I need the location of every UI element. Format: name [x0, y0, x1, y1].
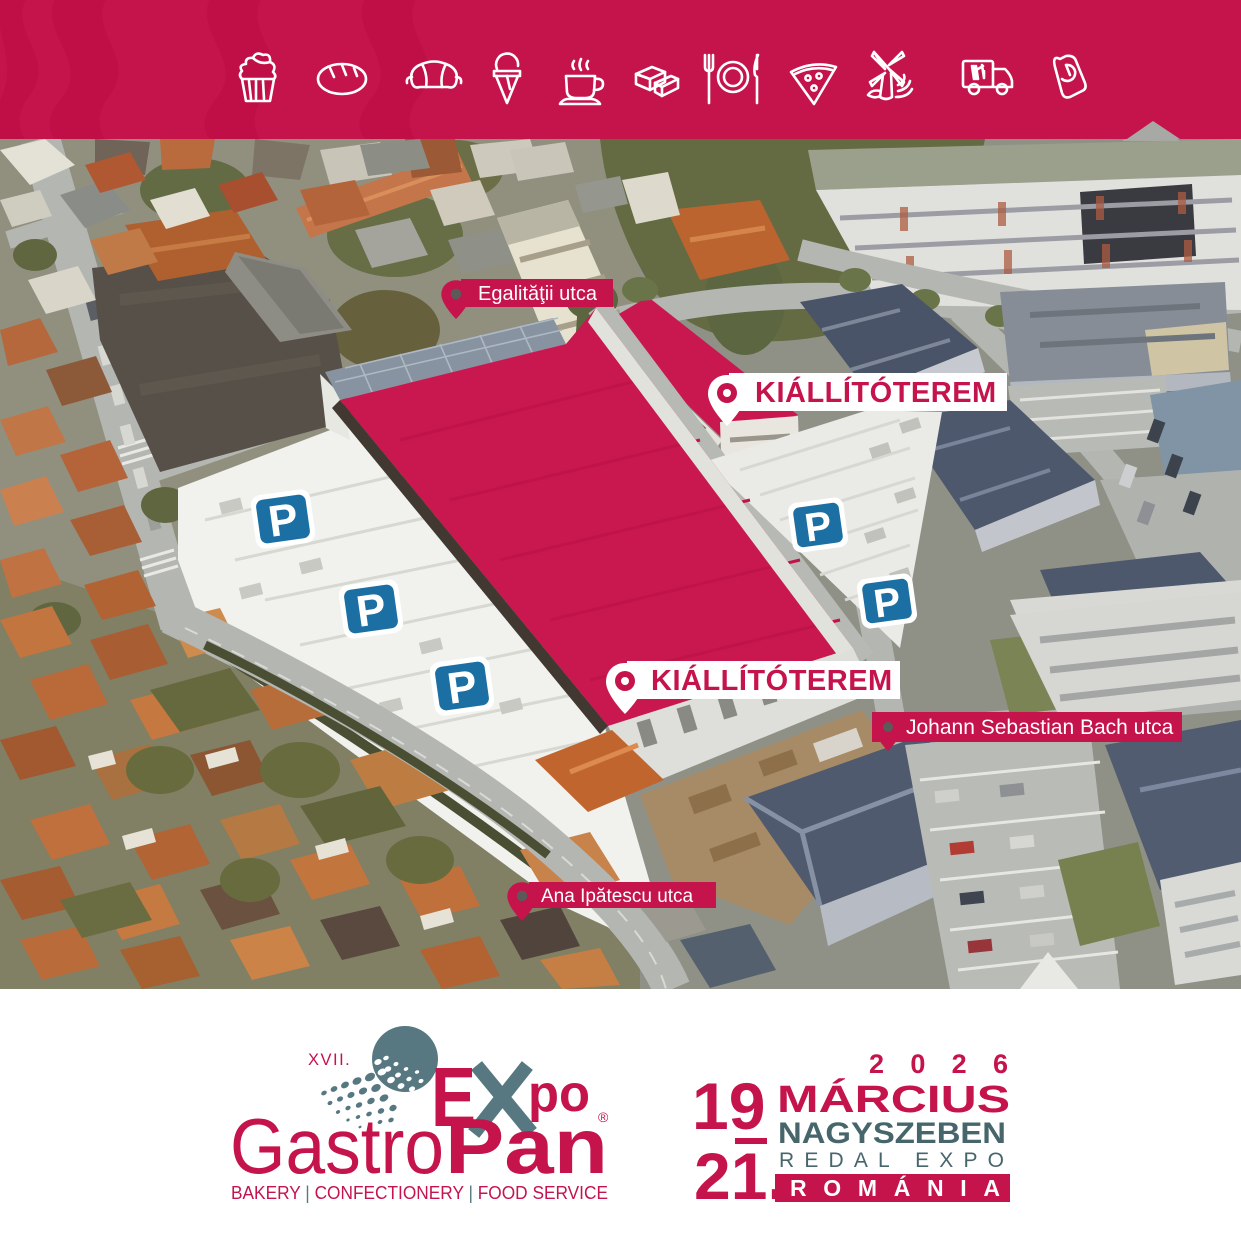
svg-text:19: 19 — [692, 1069, 765, 1143]
svg-text:Egalităţii utca: Egalităţii utca — [478, 283, 598, 305]
svg-text:MÁRCIUS: MÁRCIUS — [777, 1077, 1010, 1121]
svg-text:KIÁLLÍTÓTEREM: KIÁLLÍTÓTEREM — [755, 375, 997, 409]
svg-text:Johann Sebastian Bach utca: Johann Sebastian Bach utca — [906, 716, 1174, 739]
svg-text:REDAL EXPO: REDAL EXPO — [779, 1149, 1004, 1172]
svg-text:2026: 2026 — [869, 1049, 1008, 1079]
svg-text:NAGYSZEBEN: NAGYSZEBEN — [778, 1117, 1006, 1150]
svg-text:Ana Ipătescu utca: Ana Ipătescu utca — [541, 886, 694, 907]
svg-text:BAKERY | CONFECTIONERY | FOOD: BAKERY | CONFECTIONERY | FOOD SERVICE — [231, 1183, 608, 1203]
svg-text:KIÁLLÍTÓTEREM: KIÁLLÍTÓTEREM — [651, 663, 893, 697]
svg-text:21.: 21. — [694, 1139, 786, 1213]
svg-text:XVII.: XVII. — [308, 1051, 351, 1069]
svg-text:Pan: Pan — [445, 1102, 608, 1190]
svg-text:Gastro: Gastro — [230, 1102, 444, 1190]
